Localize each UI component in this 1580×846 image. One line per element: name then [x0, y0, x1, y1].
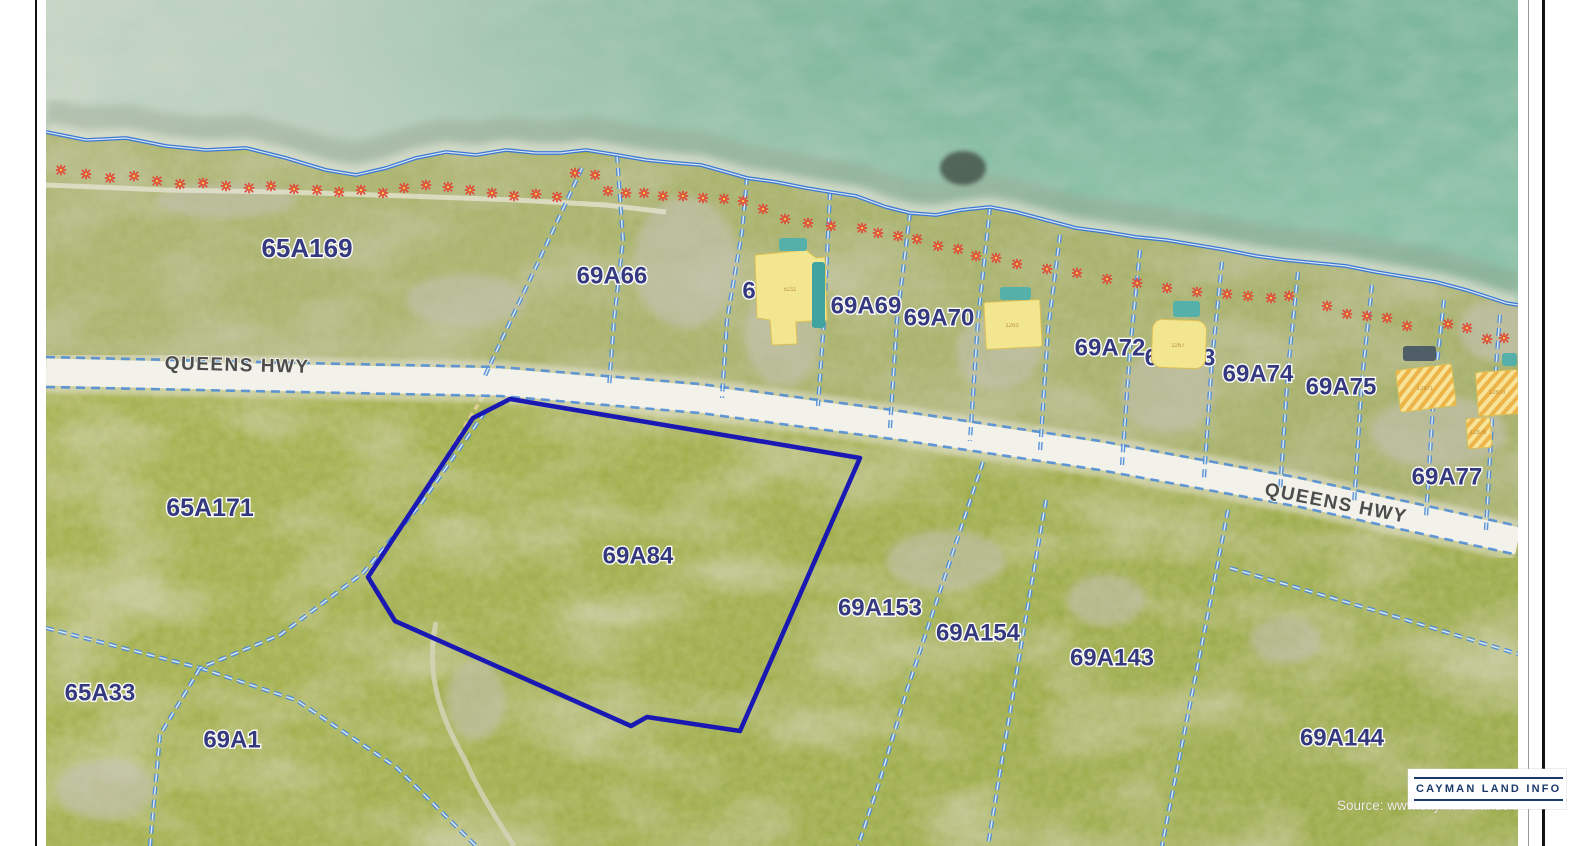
building-number: 1263: [1005, 323, 1019, 329]
pool: [812, 262, 825, 328]
coastal-vegetation-marker: [1162, 283, 1172, 293]
coastal-vegetation-marker: [1382, 313, 1392, 323]
parcel-label-69A154: 69A154: [936, 620, 1021, 647]
coastal-vegetation-marker: [198, 178, 208, 188]
parcel-label-69A75: 69A75: [1306, 374, 1377, 401]
coastal-vegetation-marker: [603, 186, 613, 196]
building-number: 1267: [1171, 343, 1185, 349]
coastal-vegetation-marker: [552, 192, 562, 202]
coastal-vegetation-marker: [1192, 287, 1202, 297]
sand-clearing: [1066, 574, 1146, 626]
coastal-vegetation-marker: [443, 182, 453, 192]
coastal-vegetation-marker: [509, 191, 519, 201]
coastal-vegetation-marker: [570, 168, 580, 178]
coastal-vegetation-marker: [658, 191, 668, 201]
coastal-vegetation-marker: [152, 176, 162, 186]
coastal-vegetation-marker: [421, 180, 431, 190]
sand-clearing: [56, 760, 156, 820]
coastal-vegetation-marker: [590, 170, 600, 180]
coastal-vegetation-marker: [1322, 301, 1332, 311]
cayman-land-info-logo: CAYMAN LAND INFO: [1408, 769, 1566, 809]
coastal-vegetation-marker: [893, 231, 903, 241]
coastal-vegetation-marker: [803, 218, 813, 228]
coastal-vegetation-marker: [758, 204, 768, 214]
coastal-vegetation-marker: [1072, 268, 1082, 278]
parcel-label-65A33: 65A33: [65, 680, 136, 707]
coastal-vegetation-marker: [531, 189, 541, 199]
coastal-vegetation-marker: [621, 188, 631, 198]
pool: [1502, 353, 1517, 366]
coastal-vegetation-marker: [129, 171, 139, 181]
coastal-vegetation-marker: [933, 241, 943, 251]
building-number: 12871: [1417, 386, 1434, 392]
coastal-vegetation-marker: [719, 194, 729, 204]
pool: [1000, 287, 1031, 300]
reef-dark-patch: [940, 151, 986, 185]
coastal-vegetation-marker: [1362, 311, 1372, 321]
coastal-vegetation-marker: [971, 251, 981, 261]
sand-clearing: [1250, 616, 1322, 664]
parcel-label-69A143: 69A143: [1070, 645, 1154, 672]
pool: [779, 238, 807, 251]
coastal-vegetation-marker: [1402, 321, 1412, 331]
coastal-vegetation-marker: [1222, 289, 1232, 299]
parcel-label-69A153: 69A153: [838, 595, 922, 622]
pool: [1173, 301, 1200, 317]
coastal-vegetation-marker: [1266, 293, 1276, 303]
coastal-vegetation-marker: [639, 188, 649, 198]
coastal-vegetation-marker: [1102, 274, 1112, 284]
coastal-vegetation-marker: [356, 185, 366, 195]
coastal-vegetation-marker: [465, 185, 475, 195]
coastal-vegetation-marker: [1284, 291, 1294, 301]
coastal-vegetation-marker: [378, 188, 388, 198]
parcel-label-69A144: 69A144: [1300, 725, 1385, 752]
sand-clearing: [406, 274, 526, 326]
coastal-vegetation-marker: [857, 223, 867, 233]
map-canvas: 65A16969A66669A6969A70669A7269A7369A7469…: [46, 0, 1518, 846]
coastal-vegetation-marker: [105, 173, 115, 183]
coastal-vegetation-marker: [266, 181, 276, 191]
coastal-vegetation-marker: [698, 193, 708, 203]
road-name-label: QUEENS HWY: [164, 353, 309, 378]
coastal-vegetation-marker: [780, 214, 790, 224]
coastal-vegetation-marker: [1042, 264, 1052, 274]
sand-clearing: [446, 660, 506, 740]
coastal-vegetation-marker: [738, 196, 748, 206]
coastal-vegetation-marker: [1443, 319, 1453, 329]
parcel-label-6: 6: [742, 278, 755, 305]
map-neatline: [1528, 0, 1529, 846]
coastal-vegetation-marker: [1342, 309, 1352, 319]
parcel-label-69A70: 69A70: [904, 305, 975, 332]
logo-wordmark: CAYMAN LAND INFO: [1414, 777, 1563, 801]
sand-clearing: [634, 196, 738, 328]
parcel-label-69A84: 69A84: [603, 543, 674, 570]
coastal-vegetation-marker: [1462, 323, 1472, 333]
coastal-vegetation-marker: [56, 165, 66, 175]
coastal-vegetation-marker: [1012, 259, 1022, 269]
coastal-vegetation-marker: [991, 253, 1001, 263]
coastal-vegetation-marker: [221, 181, 231, 191]
parcel-label-65A169: 65A169: [261, 233, 352, 263]
coastal-vegetation-marker: [244, 183, 254, 193]
parcel-label-69A72: 69A72: [1075, 335, 1146, 362]
coastal-vegetation-marker: [81, 169, 91, 179]
coastal-vegetation-marker: [1243, 291, 1253, 301]
parcel-label-69A1: 69A1: [203, 727, 260, 754]
coastal-vegetation-marker: [1132, 278, 1142, 288]
coastal-vegetation-marker: [312, 185, 322, 195]
building-number: 5211: [784, 287, 798, 293]
frame-line-left: [35, 0, 37, 846]
coastal-vegetation-marker: [175, 179, 185, 189]
coastal-vegetation-marker: [1482, 334, 1492, 344]
frame-line-right: [1542, 0, 1545, 846]
coastal-vegetation-marker: [912, 234, 922, 244]
coastal-vegetation-marker: [826, 221, 836, 231]
coastal-vegetation-marker: [487, 188, 497, 198]
coastal-vegetation-marker: [678, 191, 688, 201]
pool: [1403, 346, 1436, 361]
coastal-vegetation-marker: [953, 244, 963, 254]
parcel-label-69A66: 69A66: [577, 263, 648, 290]
building-number: 12870: [1489, 390, 1506, 396]
coastal-vegetation-marker: [873, 228, 883, 238]
parcel-label-65A171: 65A171: [166, 494, 254, 522]
coastal-vegetation-marker: [289, 184, 299, 194]
parcel-label-69A69: 69A69: [831, 293, 902, 320]
parcel-label-69A77: 69A77: [1412, 464, 1483, 491]
page-root: 65A16969A66669A6969A70669A7269A7369A7469…: [0, 0, 1580, 846]
parcel-label-69A74: 69A74: [1223, 361, 1294, 388]
sand-clearing: [886, 530, 1006, 590]
coastal-vegetation-marker: [399, 183, 409, 193]
aerial-parcel-map[interactable]: 65A16969A66669A6969A70669A7269A7369A7469…: [46, 0, 1518, 846]
building-number: 12876: [1470, 430, 1487, 436]
coastal-vegetation-marker: [334, 187, 344, 197]
coastal-vegetation-marker: [1499, 333, 1509, 343]
